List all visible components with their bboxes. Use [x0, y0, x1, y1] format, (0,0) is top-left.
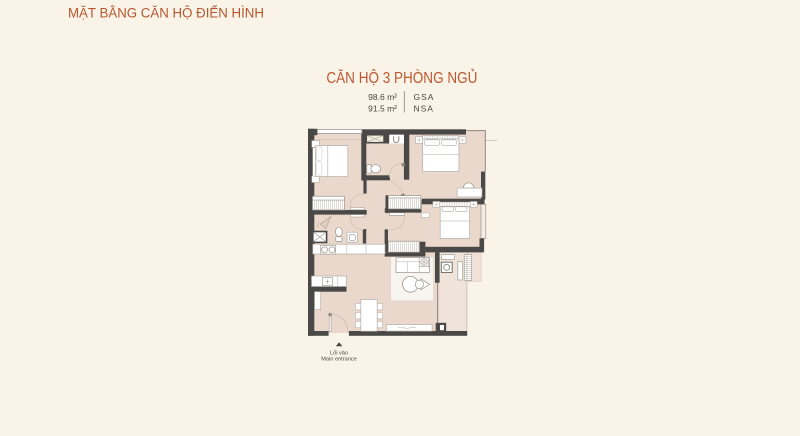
- svg-text:MẶT BẰNG CĂN HỘ ĐIỂN HÌNH: MẶT BẰNG CĂN HỘ ĐIỂN HÌNH: [68, 6, 264, 21]
- svg-text:GSA: GSA: [414, 92, 435, 102]
- svg-text:91.5 m²: 91.5 m²: [368, 104, 397, 114]
- svg-text:Lối vào: Lối vào: [330, 350, 348, 356]
- svg-text:98.6 m²: 98.6 m²: [368, 92, 397, 102]
- svg-text:Main entrance: Main entrance: [321, 357, 356, 363]
- svg-text:NSA: NSA: [414, 104, 434, 114]
- svg-text:CĂN HỘ 3 PHÒNG NGỦ: CĂN HỘ 3 PHÒNG NGỦ: [326, 68, 477, 87]
